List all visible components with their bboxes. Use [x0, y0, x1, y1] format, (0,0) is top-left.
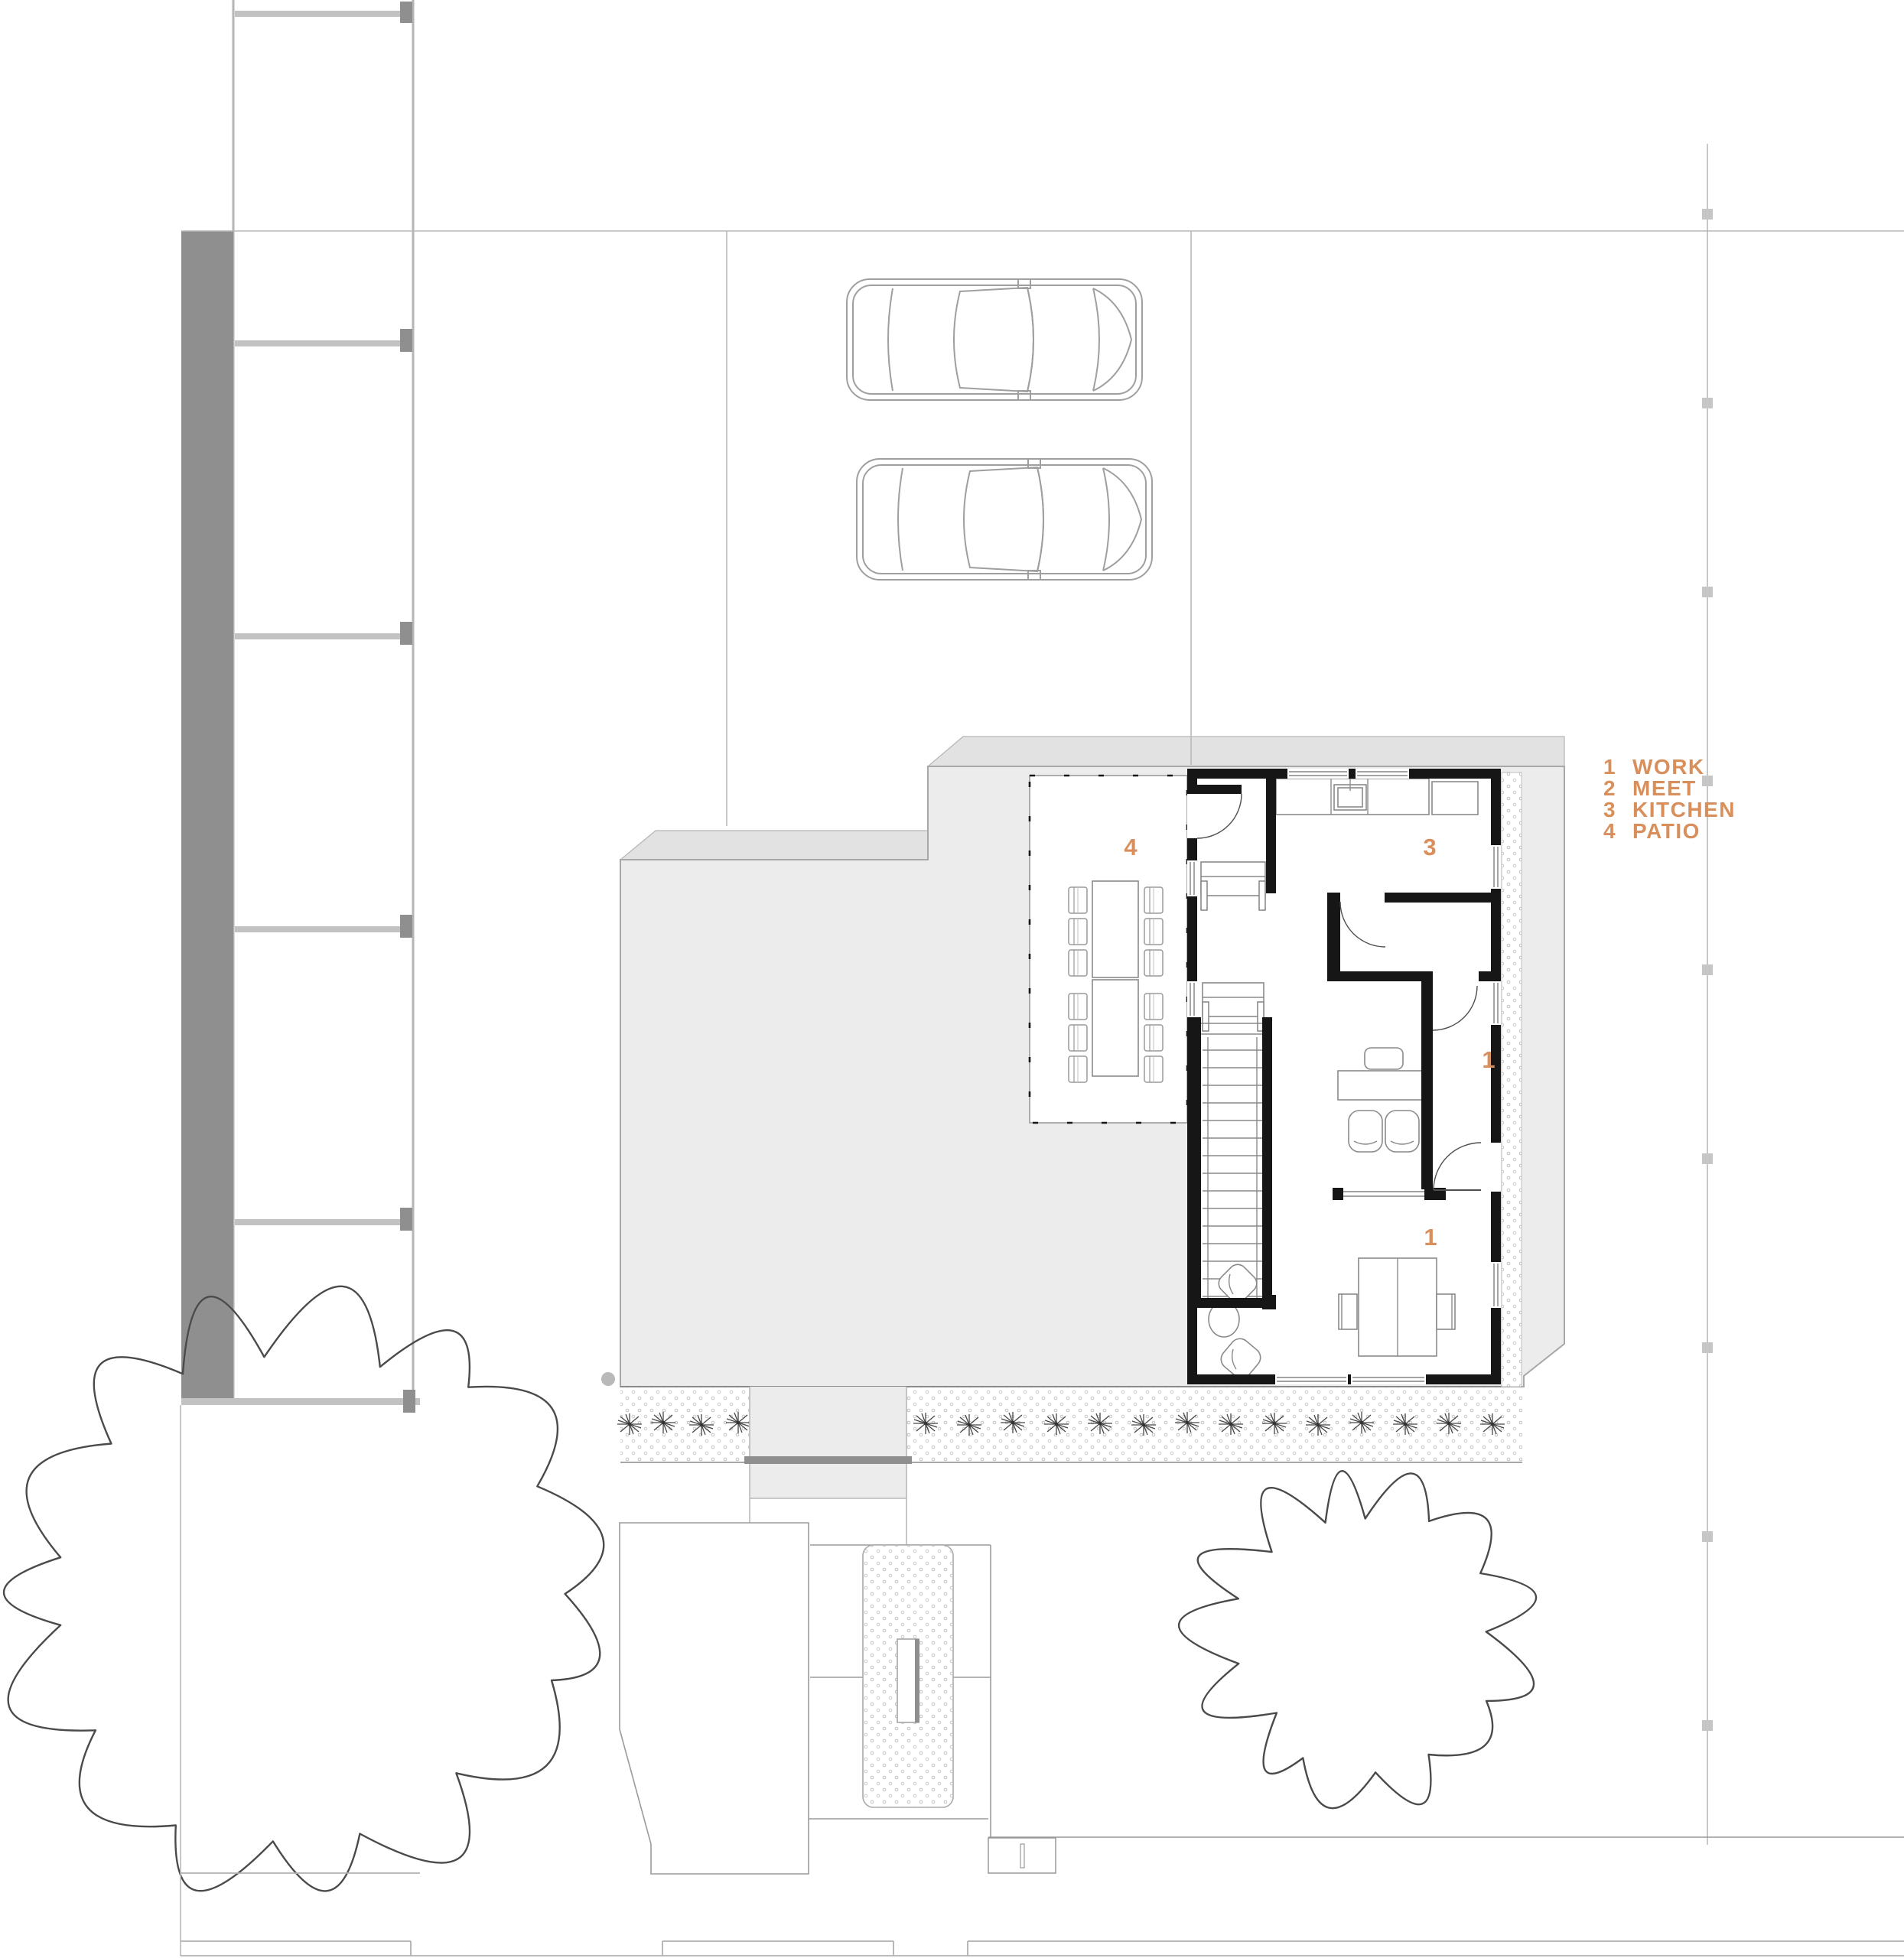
entry-walkway — [744, 1387, 912, 1545]
legend-num-4: 4 — [1603, 819, 1616, 843]
car-2 — [857, 459, 1152, 580]
car-1 — [847, 279, 1142, 400]
legend-label-work: WORK — [1632, 755, 1705, 779]
building-plan — [1187, 769, 1501, 1384]
side-planting-strip — [1502, 772, 1522, 1387]
legend-label-patio: PATIO — [1632, 819, 1701, 843]
legend-num-2: 2 — [1603, 776, 1616, 800]
site-marker-dot — [601, 1372, 615, 1386]
party-wall-strip — [181, 231, 233, 1398]
patio-deck — [1030, 776, 1187, 1123]
site-plan-drawing: 4 3 1 1 1 WORK 2 MEET 3 KITCHEN 4 PATIO — [0, 0, 1904, 1958]
legend-label-kitchen: KITCHEN — [1632, 798, 1736, 821]
gate-bar — [744, 1456, 912, 1464]
neighbor-building-south — [620, 1523, 809, 1874]
kitchen-counter — [1276, 779, 1478, 815]
room-label-kitchen: 3 — [1423, 834, 1436, 860]
utility-box — [988, 1838, 1056, 1873]
driveway-pad — [863, 1545, 953, 1807]
room-label-work-wall: 1 — [1482, 1046, 1495, 1073]
tree-right-canopy — [1179, 1471, 1536, 1808]
legend: 1 WORK 2 MEET 3 KITCHEN 4 PATIO — [1603, 755, 1736, 843]
parking-area — [847, 279, 1152, 580]
site-plan-page: 4 3 1 1 1 WORK 2 MEET 3 KITCHEN 4 PATIO — [0, 0, 1904, 1958]
legend-label-meet: MEET — [1632, 776, 1697, 800]
legend-num-3: 3 — [1603, 798, 1616, 821]
sidewalk — [181, 1873, 1904, 1956]
legend-num-1: 1 — [1603, 755, 1616, 779]
room-label-work-room: 1 — [1424, 1224, 1437, 1251]
room-label-patio: 4 — [1124, 834, 1138, 860]
corner-counter — [1432, 782, 1478, 815]
